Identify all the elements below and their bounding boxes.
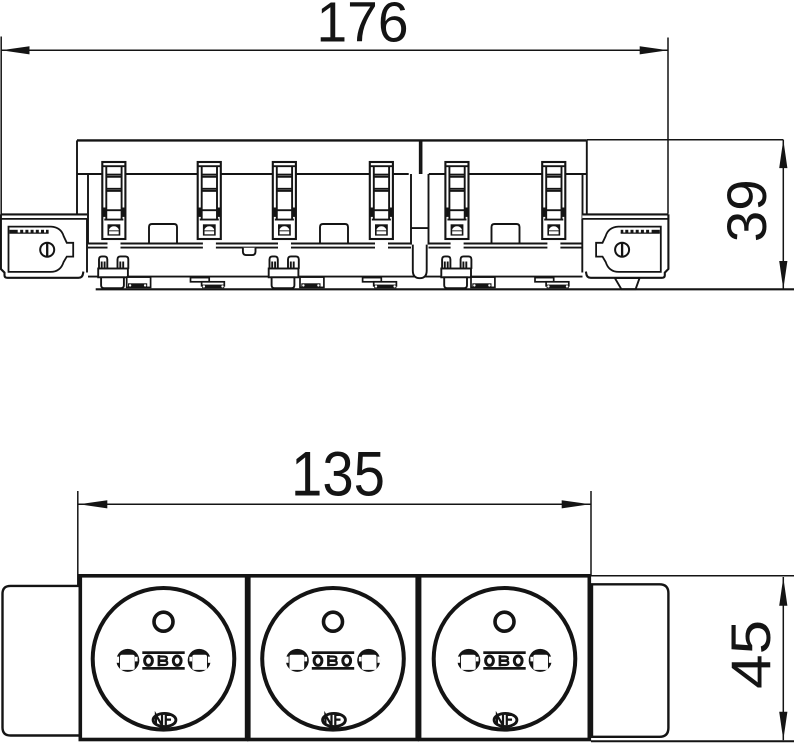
svg-text:176: 176 (317, 0, 409, 55)
svg-text:45: 45 (719, 620, 782, 689)
svg-text:135: 135 (291, 440, 385, 510)
svg-text:39: 39 (715, 179, 778, 242)
